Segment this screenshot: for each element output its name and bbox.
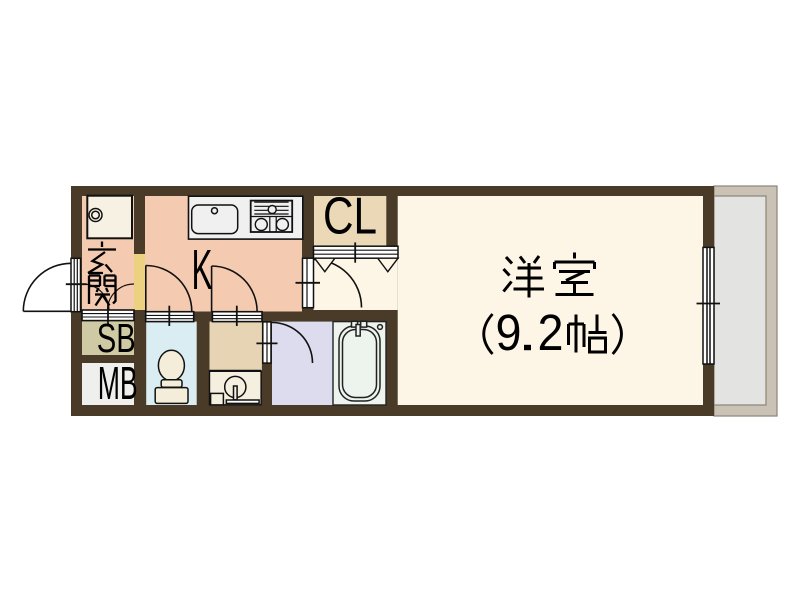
svg-text:SB: SB	[97, 315, 136, 361]
svg-text:9: 9	[496, 304, 522, 361]
svg-text:K: K	[192, 238, 213, 302]
svg-text:MB: MB	[98, 357, 138, 409]
svg-text:CL: CL	[323, 188, 377, 246]
svg-text:2: 2	[538, 304, 564, 361]
